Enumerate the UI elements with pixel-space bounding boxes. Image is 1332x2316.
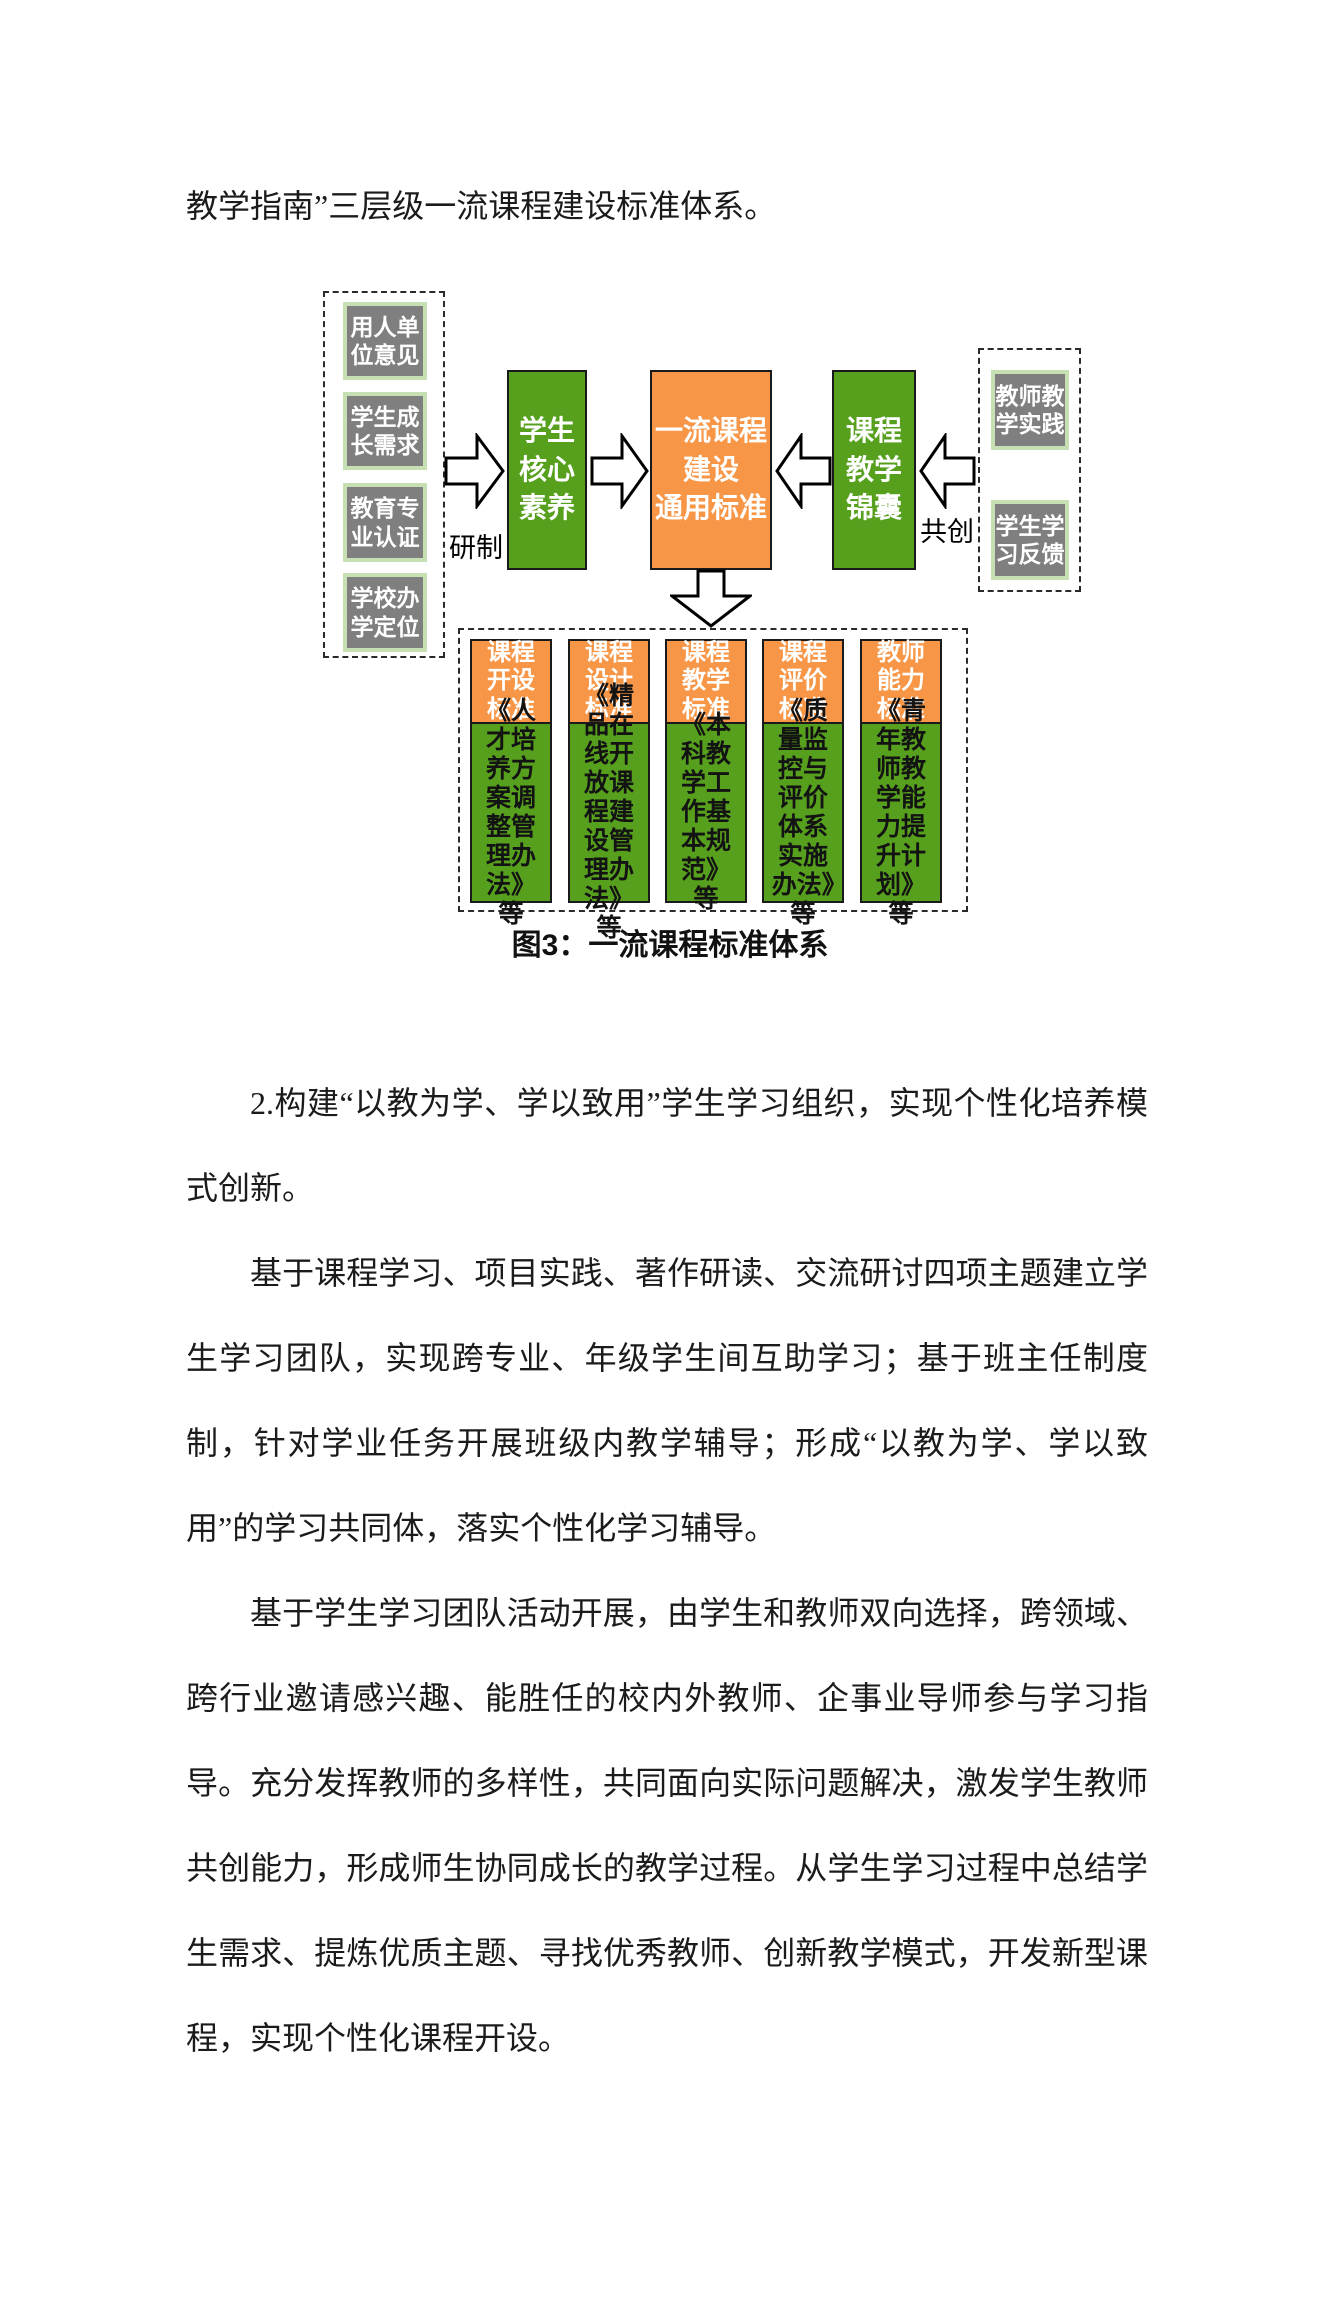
document-page: 教学指南”三层级一流课程建设标准体系。 用人单 位意见 学生成 长需求 教育专 … bbox=[0, 0, 1332, 2316]
cocreate-arrow-left-icon bbox=[918, 433, 976, 509]
intro-text: 教学指南”三层级一流课程建设标准体系。 bbox=[186, 178, 1151, 234]
body-text: 2.构建“以教为学、学以致用”学生学习组织，实现个性化培养模式创新。 基于课程学… bbox=[186, 1061, 1148, 2081]
input-teacher-practice-box: 教师教 学实践 bbox=[991, 370, 1069, 450]
to-standard-arrow-right-icon bbox=[590, 433, 650, 509]
student-core-competency-box: 学生 核心 素养 bbox=[507, 370, 587, 570]
input-education-accreditation-box: 教育专 业认证 bbox=[343, 483, 427, 562]
input-employer-opinion-box: 用人单 位意见 bbox=[343, 302, 427, 380]
figure-caption: 图3：一流课程标准体系 bbox=[300, 920, 1040, 964]
develop-label: 研制 bbox=[449, 526, 503, 565]
body-paragraph: 基于课程学习、项目实践、著作研读、交流研讨四项主题建立学生学习团队，实现跨专业、… bbox=[186, 1231, 1148, 1571]
column-body-course-evaluation: 《质量监控与评价体系实施办法》等 bbox=[762, 724, 844, 903]
cocreate-label: 共创 bbox=[920, 510, 974, 549]
column-body-teacher-ability: 《青年教师教学能力提升计划》等 bbox=[860, 724, 942, 903]
first-class-standard-box: 一流课程 建设 通用标准 bbox=[650, 370, 772, 570]
from-tips-arrow-left-icon bbox=[774, 433, 832, 509]
column-body-course-teaching: 《本科教学工作基本规范》等 bbox=[665, 724, 747, 903]
course-teaching-tips-box: 课程 教学 锦囊 bbox=[832, 370, 916, 570]
input-student-growth-box: 学生成 长需求 bbox=[343, 392, 427, 470]
column-body-course-design: 《精品在线开放课程建设管理办法》等 bbox=[568, 724, 650, 903]
column-body-course-opening: 《人才培养方案调整管理办法》等 bbox=[470, 724, 552, 903]
input-school-positioning-box: 学校办 学定位 bbox=[343, 573, 427, 652]
develop-arrow-right-icon bbox=[444, 433, 506, 509]
body-paragraph: 基于学生学习团队活动开展，由学生和教师双向选择，跨领域、跨行业邀请感兴趣、能胜任… bbox=[186, 1571, 1148, 2081]
input-student-feedback-box: 学生学 习反馈 bbox=[991, 500, 1069, 580]
down-arrow-icon bbox=[670, 569, 752, 629]
body-paragraph: 2.构建“以教为学、学以致用”学生学习组织，实现个性化培养模式创新。 bbox=[186, 1061, 1148, 1231]
